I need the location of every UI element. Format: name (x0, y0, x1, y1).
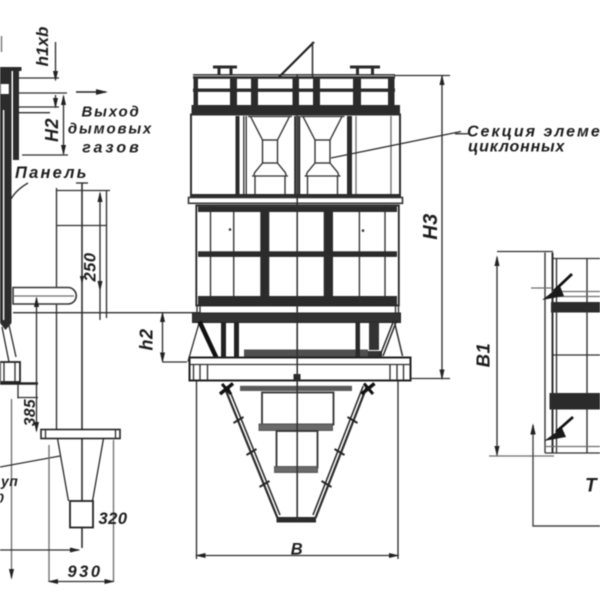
svg-text:0: 0 (0, 490, 4, 506)
svg-text:320: 320 (98, 510, 127, 528)
svg-text:В1: В1 (473, 343, 494, 368)
svg-text:930: 930 (67, 563, 102, 581)
svg-text:385: 385 (22, 399, 39, 426)
svg-text:h1хb: h1хb (33, 27, 52, 67)
svg-text:h2: h2 (137, 328, 157, 350)
svg-text:Т: Т (585, 476, 598, 497)
svg-text:Н2: Н2 (42, 118, 62, 142)
svg-text:уп: уп (0, 473, 18, 489)
svg-text:Н3: Н3 (420, 213, 442, 240)
svg-text:дымовых: дымовых (68, 121, 153, 138)
svg-text:Выход: Выход (81, 104, 140, 121)
svg-text:циклонных: циклонных (468, 139, 566, 156)
svg-text:газов: газов (82, 140, 142, 157)
svg-text:Панель: Панель (15, 164, 89, 182)
svg-text:250: 250 (82, 252, 100, 282)
